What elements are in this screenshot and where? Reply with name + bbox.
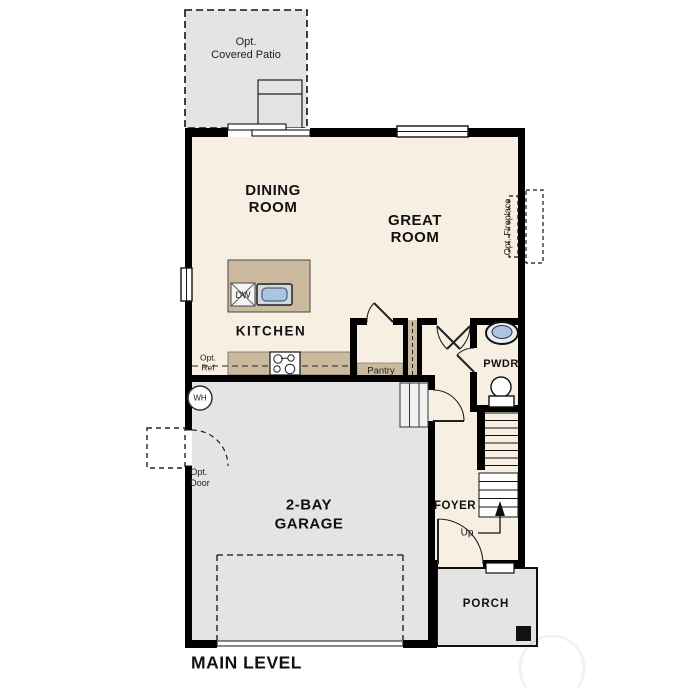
watermark	[520, 636, 584, 687]
wall-pantry-left	[350, 318, 357, 382]
wall-left	[185, 128, 192, 648]
wall-chase	[407, 320, 418, 380]
foyer-label: FOYER	[434, 500, 476, 512]
stove-symbol	[270, 352, 300, 375]
kitchen-label: KITCHEN	[236, 324, 307, 339]
opt-door-opening	[185, 430, 192, 466]
pwdr-sink-icon	[486, 322, 518, 344]
window-left	[181, 268, 192, 301]
wall-porch-left	[428, 560, 437, 648]
water-heater-label: WH	[193, 394, 206, 403]
great-room-label: GREAT ROOM	[388, 212, 442, 246]
covered-patio-area	[185, 10, 307, 128]
dishwasher-label: DW	[236, 290, 251, 300]
sink-symbol	[257, 284, 292, 305]
window-top	[397, 126, 468, 137]
opt-ref-label: Opt. Ref	[200, 354, 216, 373]
dining-room-label: DINING ROOM	[245, 182, 301, 216]
opt-fireplace-label: Opt. Fireplace	[503, 199, 514, 256]
garage-label: 2-BAY GARAGE	[275, 497, 344, 534]
patio-structure	[258, 80, 302, 128]
porch-post	[516, 626, 531, 641]
stairs-up-label: Up	[461, 528, 474, 539]
patio-label: Opt. Covered Patio	[211, 36, 281, 62]
opt-door-pad	[147, 428, 185, 468]
front-step	[486, 563, 514, 573]
garage-door	[217, 641, 403, 646]
floor-plan: Opt. Covered Patio DINING ROOM GREAT ROO…	[0, 0, 687, 687]
plan-title: MAIN LEVEL	[191, 653, 302, 674]
porch-label: PORCH	[463, 598, 510, 610]
wall-stairs	[477, 412, 485, 470]
pwdr-label: PWDR	[483, 358, 519, 370]
wall-garage-bottom-left	[185, 640, 217, 648]
pantry-label: Pantry	[367, 366, 394, 377]
wall-right	[518, 128, 525, 568]
floor-plan-drawing	[0, 0, 687, 687]
garage-steps	[400, 383, 428, 427]
kitchen-island	[228, 260, 310, 312]
opt-door-label: Opt. Door	[190, 467, 210, 489]
